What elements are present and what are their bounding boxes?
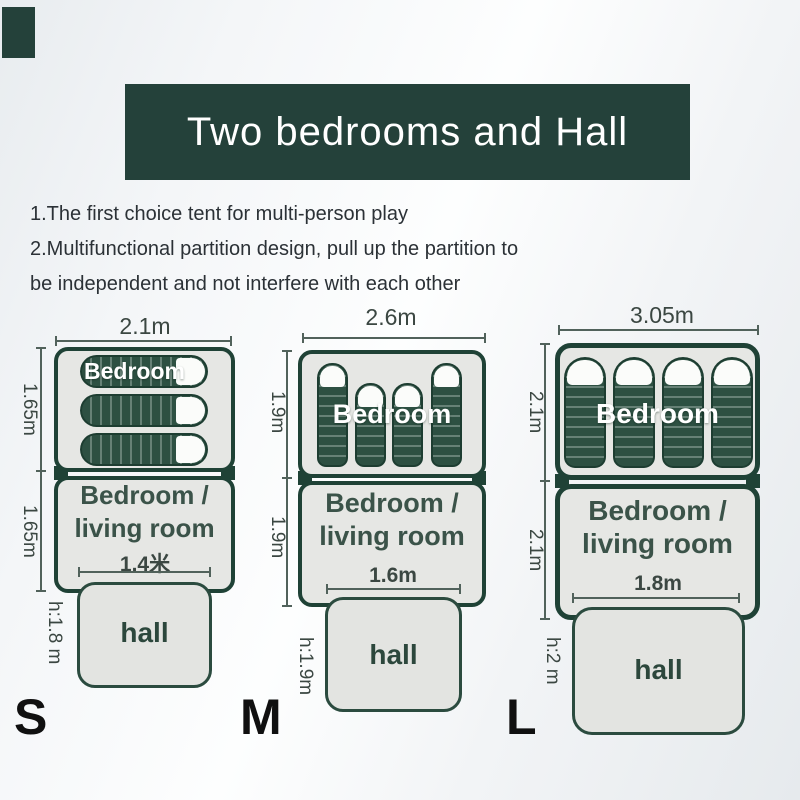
hall-width-label: 1.4米	[95, 548, 195, 578]
sleeping-bag-icon	[80, 394, 208, 427]
living-depth-label: 2.1m	[523, 506, 547, 594]
bedroom-depth-label: 1.9m	[265, 368, 289, 456]
hall-label: hall	[325, 641, 462, 669]
bedroom-label: Bedroom	[84, 356, 180, 387]
living-label-line1: Bedroom /	[555, 494, 760, 527]
living-label-line1: Bedroom /	[54, 479, 235, 512]
measure-tick	[540, 480, 550, 482]
living-label-line2: living room	[298, 520, 486, 553]
hall-height-label: h:1.9m	[293, 625, 317, 707]
size-letter-s: S	[14, 692, 47, 742]
width-measure-line	[558, 329, 759, 331]
sleeping-bag-icon	[80, 433, 208, 466]
width-measure-line	[302, 337, 486, 339]
living-depth-label: 1.65m	[17, 487, 41, 575]
width-label: 2.1m	[93, 313, 197, 340]
hall-height-label: h:2 m	[540, 612, 564, 710]
hall-width-measure-line	[572, 597, 740, 599]
hall-height-label: h:1.8 m	[42, 590, 66, 676]
living-label: Bedroom / living room	[54, 479, 235, 545]
width-label: 2.6m	[339, 304, 443, 331]
hall-width-label: 1.6m	[343, 564, 443, 588]
hall-label: hall	[77, 619, 212, 647]
tent-infographic: { "title_banner": { "text": "Two bedroom…	[0, 0, 800, 800]
width-measure-line	[55, 340, 232, 342]
hall-label: hall	[572, 656, 745, 684]
living-label: Bedroom / living room	[555, 494, 760, 560]
bedroom-depth-label: 1.65m	[17, 365, 41, 453]
bedroom-depth-label: 2.1m	[523, 368, 547, 456]
measure-tick	[36, 470, 46, 472]
living-label-line2: living room	[54, 512, 235, 545]
living-label-line1: Bedroom /	[298, 487, 486, 520]
hall-width-measure-line	[78, 571, 211, 573]
living-label: Bedroom / living room	[298, 487, 486, 553]
size-letter-m: M	[240, 692, 282, 742]
bedroom-label: Bedroom	[298, 399, 486, 430]
size-letter-l: L	[506, 692, 537, 742]
living-depth-label: 1.9m	[265, 493, 289, 581]
width-label: 3.05m	[608, 302, 716, 329]
living-label-line2: living room	[555, 527, 760, 560]
bedroom-label: Bedroom	[555, 398, 760, 430]
hall-width-measure-line	[326, 588, 461, 590]
hall-width-label: 1.8m	[608, 572, 708, 596]
measure-tick	[282, 477, 292, 479]
